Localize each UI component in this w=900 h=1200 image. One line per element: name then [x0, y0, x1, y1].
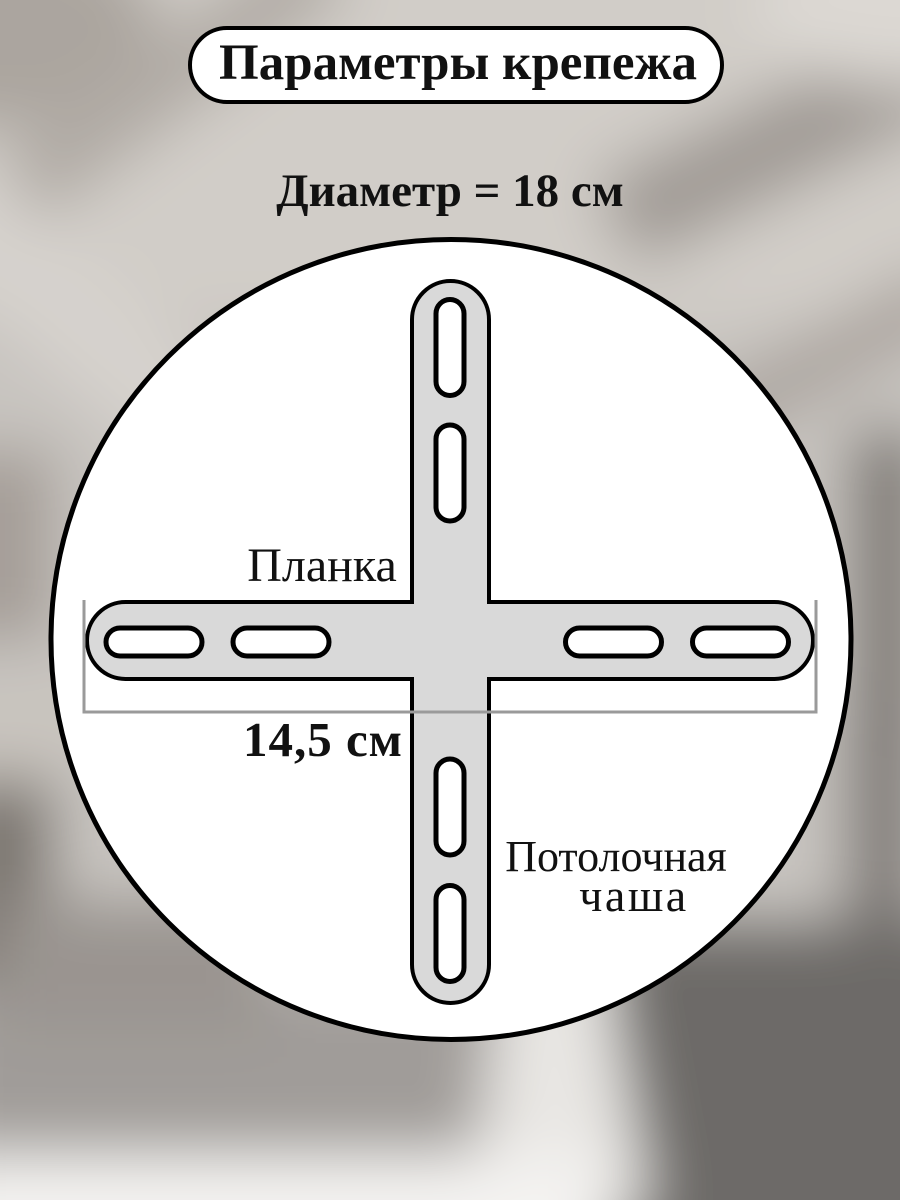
svg-text:Планка: Планка [247, 539, 397, 592]
svg-text:чаша: чаша [579, 870, 688, 921]
svg-text:14,5 см: 14,5 см [243, 712, 403, 767]
svg-text:Параметры крепежа: Параметры крепежа [219, 35, 697, 91]
svg-text:Диаметр = 18 см: Диаметр = 18 см [276, 165, 624, 217]
